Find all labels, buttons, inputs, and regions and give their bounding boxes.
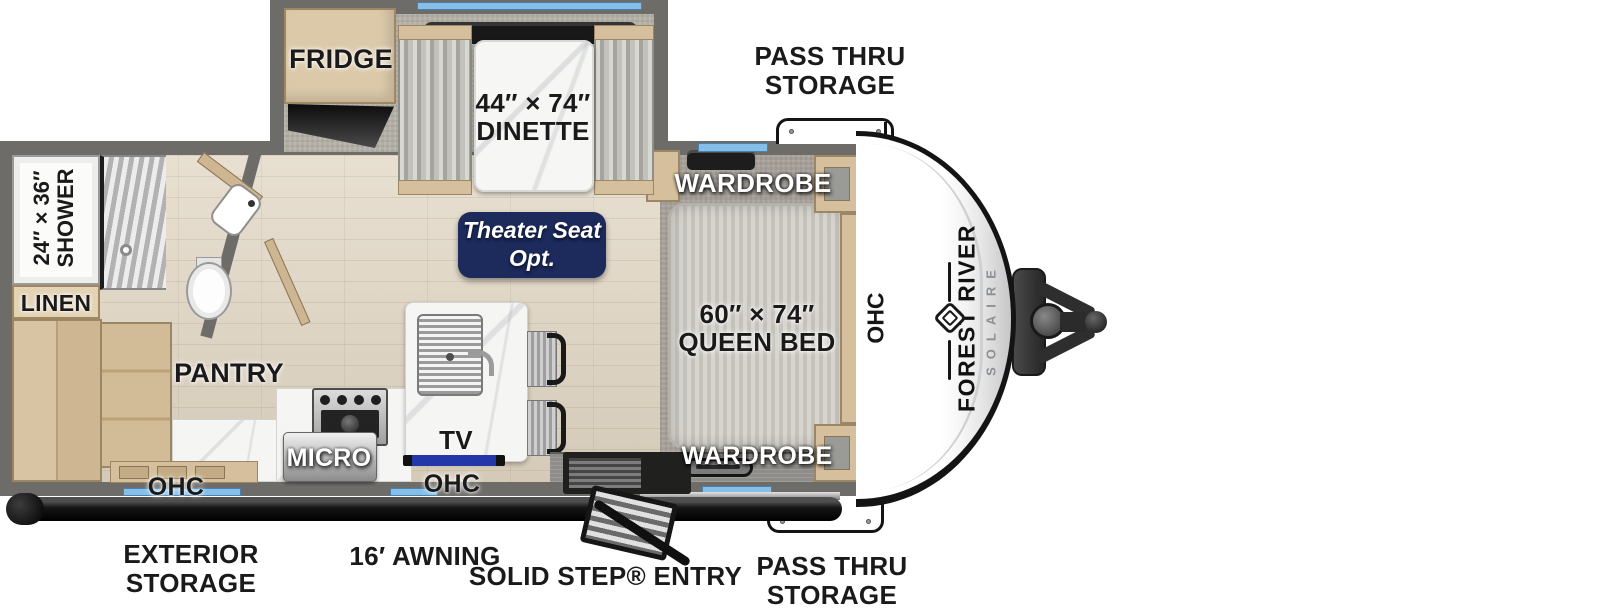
label-line: STORAGE bbox=[730, 71, 930, 100]
awning-tube bbox=[10, 497, 842, 521]
badge-line1: Theater Seat bbox=[458, 216, 606, 244]
floorplan-canvas: OHC FOREST RIVER SOLAIRE FRIDGE 44″ × 74… bbox=[0, 0, 1600, 616]
dinette-name: DINETTE bbox=[443, 118, 623, 146]
shower-name: SHOWER bbox=[54, 169, 78, 268]
fridge-label: FRIDGE bbox=[281, 45, 401, 74]
tv-label: TV bbox=[416, 427, 496, 455]
burner-icon bbox=[354, 395, 364, 405]
shower-drain-icon bbox=[120, 244, 132, 256]
solid-step-entry-label: SOLID STEP® ENTRY bbox=[448, 563, 763, 591]
bedroom-window bbox=[698, 143, 768, 152]
awning-end-cap bbox=[6, 493, 44, 525]
badge-line2: Opt. bbox=[458, 244, 606, 272]
slideout-window bbox=[417, 2, 642, 10]
burner-icon bbox=[371, 395, 381, 405]
hitch-coupler-ball bbox=[1085, 311, 1107, 333]
wardrobe-top-label: WARDROBE bbox=[653, 170, 853, 198]
label-line: PASS THRU bbox=[730, 42, 930, 71]
queen-size: 60″ × 74″ bbox=[667, 301, 847, 329]
queen-bed-label: 60″ × 74″ QUEEN BED bbox=[667, 301, 847, 357]
wardrobe-bottom-label: WARDROBE bbox=[657, 443, 857, 470]
tv-screen-icon bbox=[403, 455, 505, 466]
ohc-kitchen-left-label: OHC bbox=[136, 474, 216, 501]
pantry-cabinet bbox=[100, 322, 172, 468]
label-line: STORAGE bbox=[86, 569, 296, 598]
screw-icon bbox=[789, 129, 794, 134]
shower-glass-door bbox=[100, 155, 166, 290]
hitch-tongue bbox=[1060, 312, 1086, 332]
burner-icon bbox=[337, 395, 347, 405]
microwave-label: MICRO bbox=[279, 445, 379, 472]
dinette-size: 44″ × 74″ bbox=[443, 90, 623, 118]
label-line: EXTERIOR bbox=[86, 540, 296, 569]
model-name: SOLAIRE bbox=[984, 262, 999, 376]
linen-label: LINEN bbox=[16, 291, 96, 316]
toilet-icon bbox=[186, 262, 232, 320]
pass-thru-storage-top-label: PASS THRU STORAGE bbox=[730, 42, 930, 99]
ohc-kitchen-right-label: OHC bbox=[412, 471, 492, 498]
theater-seat-option-badge: Theater Seat Opt. bbox=[458, 212, 606, 278]
bar-stool bbox=[527, 331, 557, 387]
queen-name: QUEEN BED bbox=[667, 329, 847, 357]
rear-closet bbox=[12, 319, 102, 482]
screw-icon bbox=[866, 519, 871, 524]
pantry-label: PANTRY bbox=[149, 359, 309, 388]
ohc-front-label: OHC bbox=[863, 292, 890, 343]
shower-label: 24″ × 36″ SHOWER bbox=[30, 169, 78, 268]
bar-stool bbox=[527, 400, 557, 456]
dinette-label: 44″ × 74″ DINETTE bbox=[443, 90, 623, 146]
exterior-storage-label: EXTERIOR STORAGE bbox=[86, 540, 296, 598]
logo-accent-line bbox=[948, 262, 951, 302]
burner-icon bbox=[320, 395, 330, 405]
roof-vent-icon bbox=[687, 150, 755, 170]
logo-accent-line bbox=[948, 340, 951, 380]
shower-size: 24″ × 36″ bbox=[30, 169, 54, 268]
